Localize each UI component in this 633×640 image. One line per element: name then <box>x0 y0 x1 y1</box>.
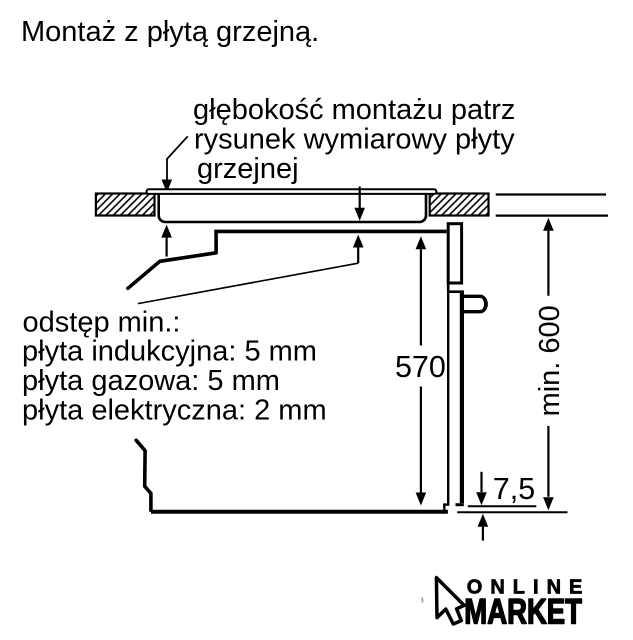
svg-text:MARKET: MARKET <box>464 591 582 631</box>
svg-text:Montaż z płytą grzejną.: Montaż z płytą grzejną. <box>21 16 319 48</box>
svg-text:płyta indukcyjna: 5 mm: płyta indukcyjna: 5 mm <box>22 336 317 368</box>
svg-text:570: 570 <box>395 350 446 384</box>
svg-text:rysunek wymiarowy płyty: rysunek wymiarowy płyty <box>194 124 515 156</box>
svg-text:7,5: 7,5 <box>493 472 535 506</box>
svg-text:grzejnej: grzejnej <box>197 153 299 185</box>
svg-text:min. 600: min. 600 <box>534 305 566 416</box>
svg-text:płyta elektryczna: 2 mm: płyta elektryczna: 2 mm <box>22 394 327 426</box>
svg-text:odstęp min.:: odstęp min.: <box>23 306 181 338</box>
svg-text:płyta gazowa: 5 mm: płyta gazowa: 5 mm <box>22 365 280 397</box>
svg-text:głębokość montażu patrz: głębokość montażu patrz <box>193 94 515 126</box>
